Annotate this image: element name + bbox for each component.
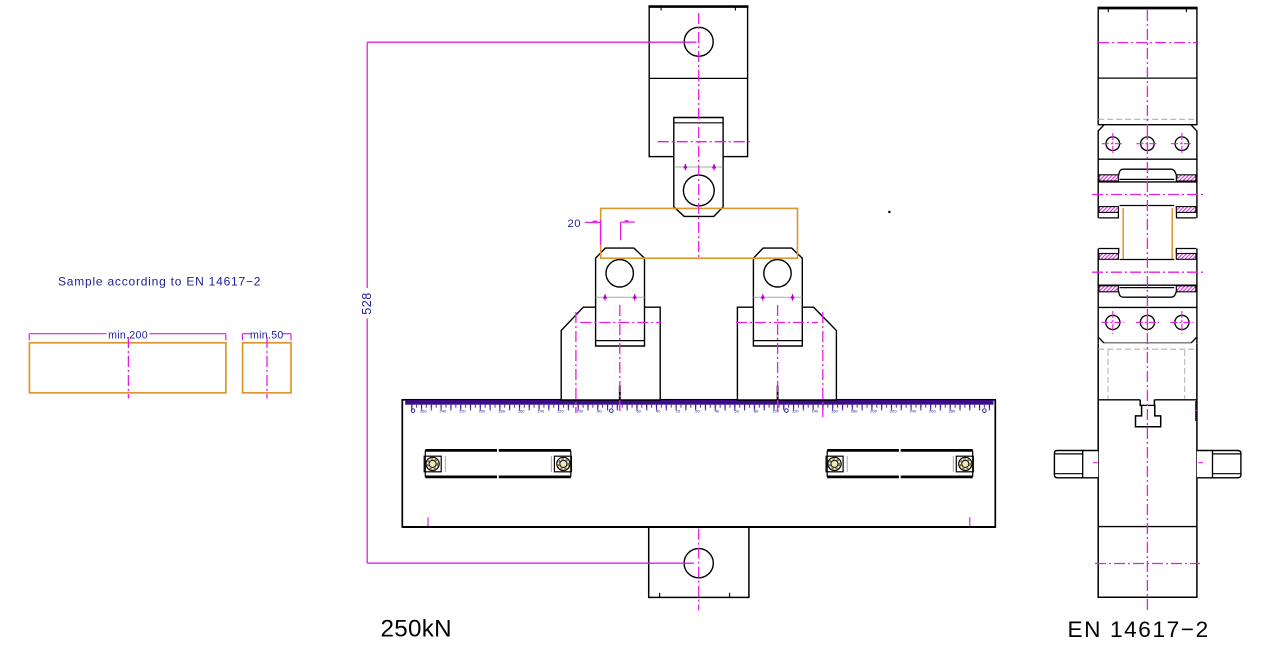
svg-text:20: 20 [568, 218, 581, 230]
svg-text:40: 40 [715, 409, 720, 414]
svg-text:140: 140 [812, 409, 819, 414]
svg-text:220: 220 [459, 409, 466, 414]
svg-text:200: 200 [870, 409, 877, 414]
svg-text:80: 80 [597, 409, 602, 414]
svg-text:100: 100 [772, 409, 779, 414]
svg-text:140: 140 [537, 409, 544, 414]
svg-text:180: 180 [851, 409, 858, 414]
svg-text:40: 40 [656, 409, 661, 414]
svg-text:60: 60 [636, 409, 641, 414]
svg-text:80: 80 [754, 409, 759, 414]
svg-text:60: 60 [734, 409, 739, 414]
svg-text:240: 240 [909, 409, 916, 414]
svg-text:20: 20 [695, 409, 700, 414]
svg-text:Sample according to EN 146: Sample according to EN 14617−2 [58, 275, 261, 289]
svg-text:260: 260 [420, 409, 427, 414]
svg-text:180: 180 [498, 409, 505, 414]
svg-text:120: 120 [557, 409, 564, 414]
svg-text:240: 240 [440, 409, 447, 414]
svg-text:20: 20 [676, 409, 681, 414]
svg-text:528: 528 [360, 292, 374, 315]
svg-text:260: 260 [929, 409, 936, 414]
svg-text:160: 160 [518, 409, 525, 414]
svg-text:EN 14617−2: EN 14617−2 [1068, 617, 1210, 642]
svg-text:280: 280 [949, 409, 956, 414]
svg-text:250kN: 250kN [381, 616, 452, 643]
svg-text:120: 120 [792, 409, 799, 414]
svg-text:220: 220 [890, 409, 897, 414]
svg-text:200: 200 [479, 409, 486, 414]
svg-text:160: 160 [831, 409, 838, 414]
svg-text:100: 100 [577, 409, 584, 414]
